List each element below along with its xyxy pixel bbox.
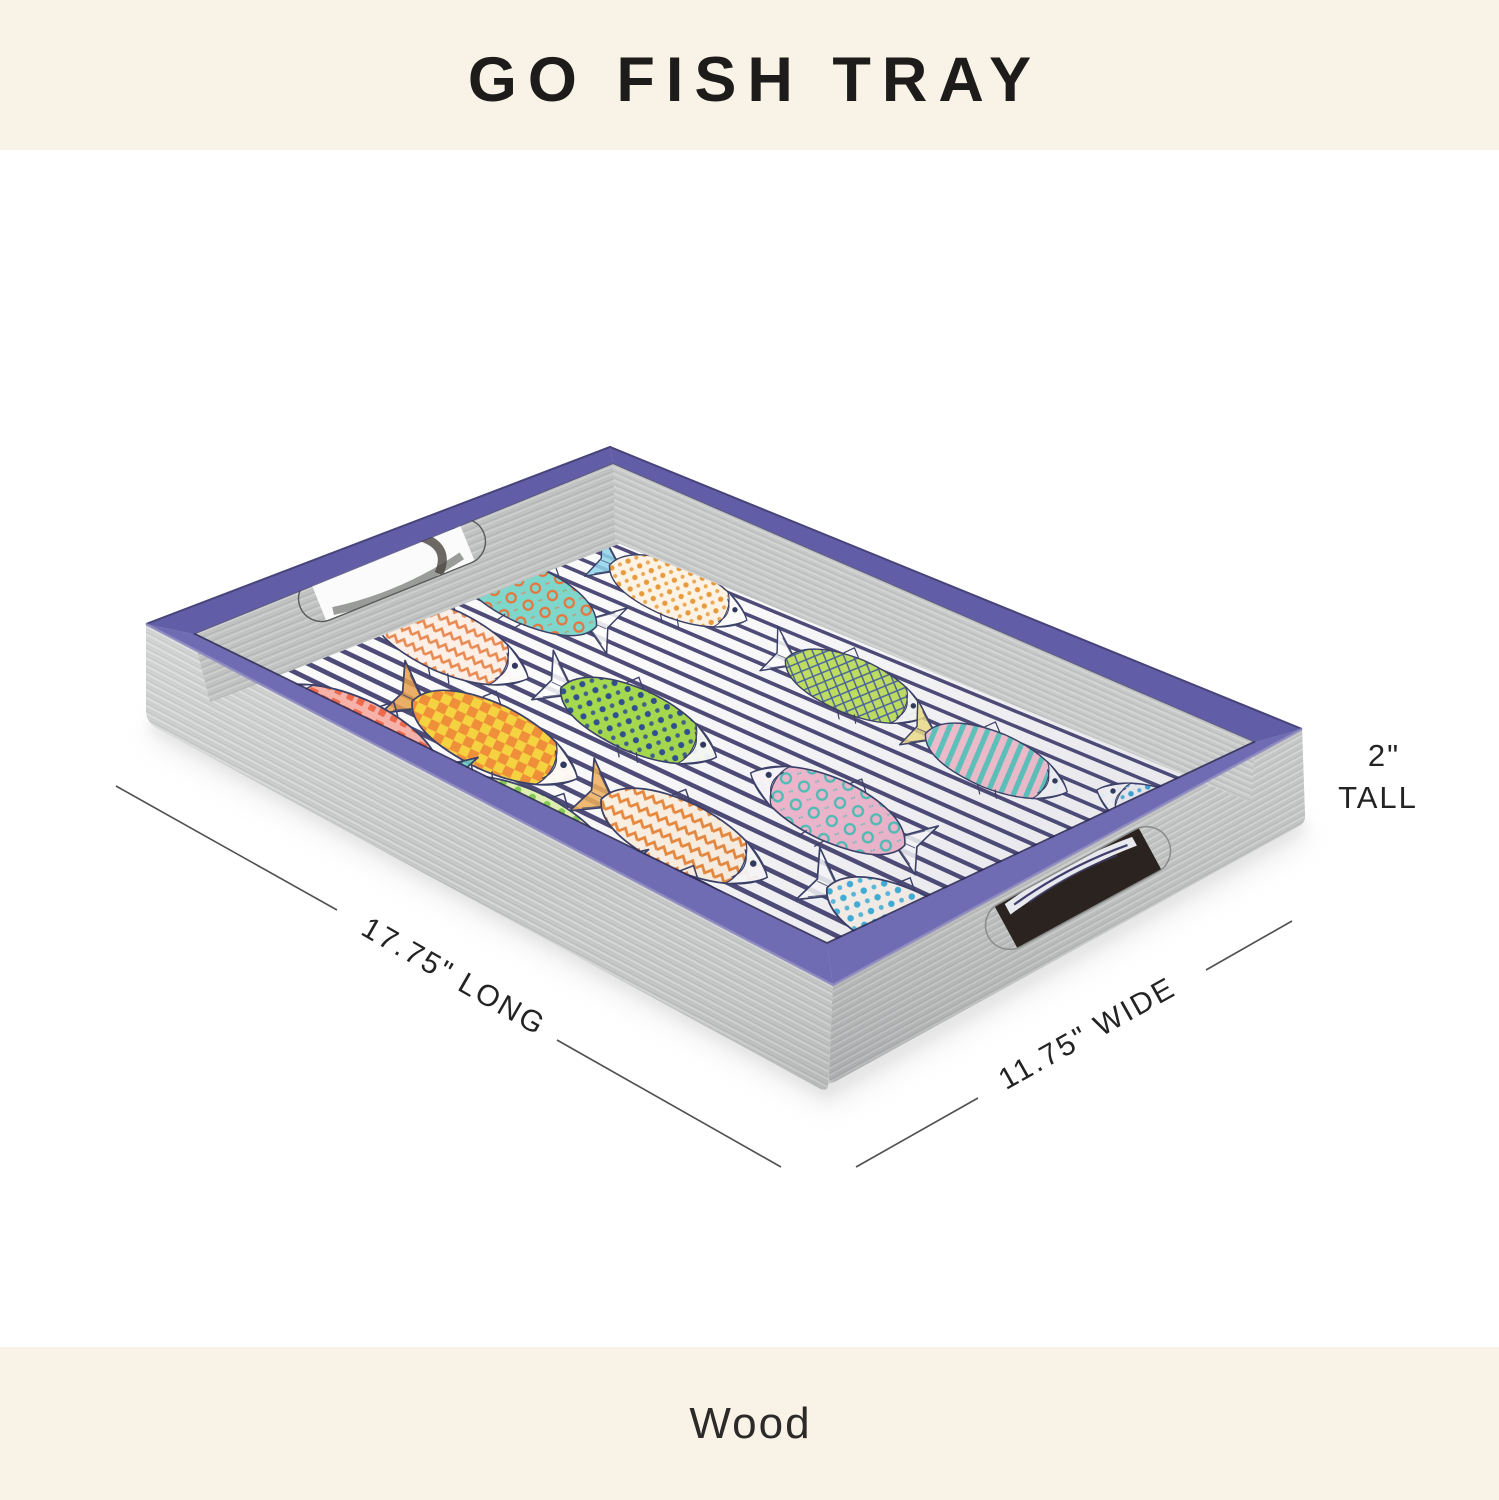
dimension-label-tall-word: TALL xyxy=(1338,780,1418,815)
product-infographic: 17.75" LONG 11.75" WIDE 2" TALL GO FISH … xyxy=(0,0,1499,1500)
dimension-line-wide-2 xyxy=(1206,921,1292,970)
dimension-label-tall-value: 2" xyxy=(1368,738,1400,773)
tray-illustration: 17.75" LONG 11.75" WIDE 2" TALL xyxy=(0,0,1499,1500)
header-banner: GO FISH TRAY xyxy=(0,0,1499,150)
footer-banner: Wood xyxy=(0,1347,1499,1500)
material-label: Wood xyxy=(687,1399,811,1449)
dimension-line-wide-1 xyxy=(856,1098,978,1167)
page-title: GO FISH TRAY xyxy=(457,34,1042,116)
